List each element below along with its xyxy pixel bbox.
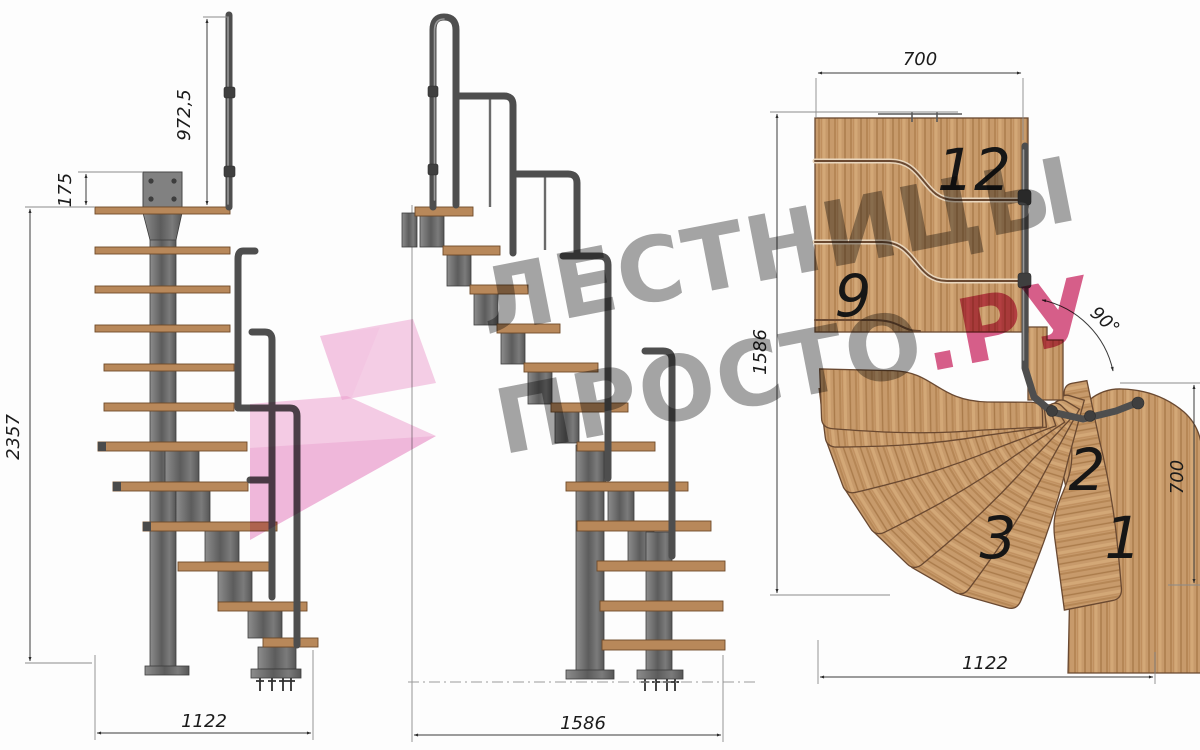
step-number-3: 3	[980, 504, 1017, 572]
dim-front-total-height: 2357	[3, 414, 24, 460]
dim-front-plate-height: 175	[55, 173, 76, 207]
dim-plan-top-width: 700	[903, 49, 937, 70]
side-anchor-bolts	[641, 679, 679, 691]
dim-front-rail-height: 972,5	[174, 89, 195, 141]
side-elevation-view: 1586	[402, 17, 758, 742]
step-number-2: 2	[1069, 436, 1106, 504]
step-number-9: 9	[835, 262, 872, 330]
front-steps	[95, 207, 318, 647]
front-wall-plate	[143, 172, 182, 207]
plan-view: 12 9 3 2 1 700 1586 700 1122 90°	[750, 49, 1200, 684]
drawing-canvas: 972,5 175 2357 1122	[0, 0, 1200, 750]
side-handrail	[428, 17, 672, 556]
front-elevation-view: 972,5 175 2357 1122	[3, 15, 318, 740]
dim-plan-right-depth: 700	[1167, 460, 1188, 494]
dim-front-width: 1122	[181, 711, 227, 732]
dim-plan-left-height: 1586	[750, 329, 771, 375]
front-anchor-bolts	[256, 678, 295, 691]
dim-plan-bottom-width: 1122	[962, 653, 1008, 674]
side-dimensions: 1586	[414, 655, 723, 742]
step-number-1: 1	[1105, 504, 1142, 572]
dim-plan-angle: 90°	[1086, 302, 1124, 339]
step-number-12: 12	[937, 136, 1011, 204]
tread-9	[820, 365, 1043, 435]
staircase-technical-drawing: 972,5 175 2357 1122	[0, 0, 1200, 750]
dim-side-length: 1586	[560, 713, 606, 734]
